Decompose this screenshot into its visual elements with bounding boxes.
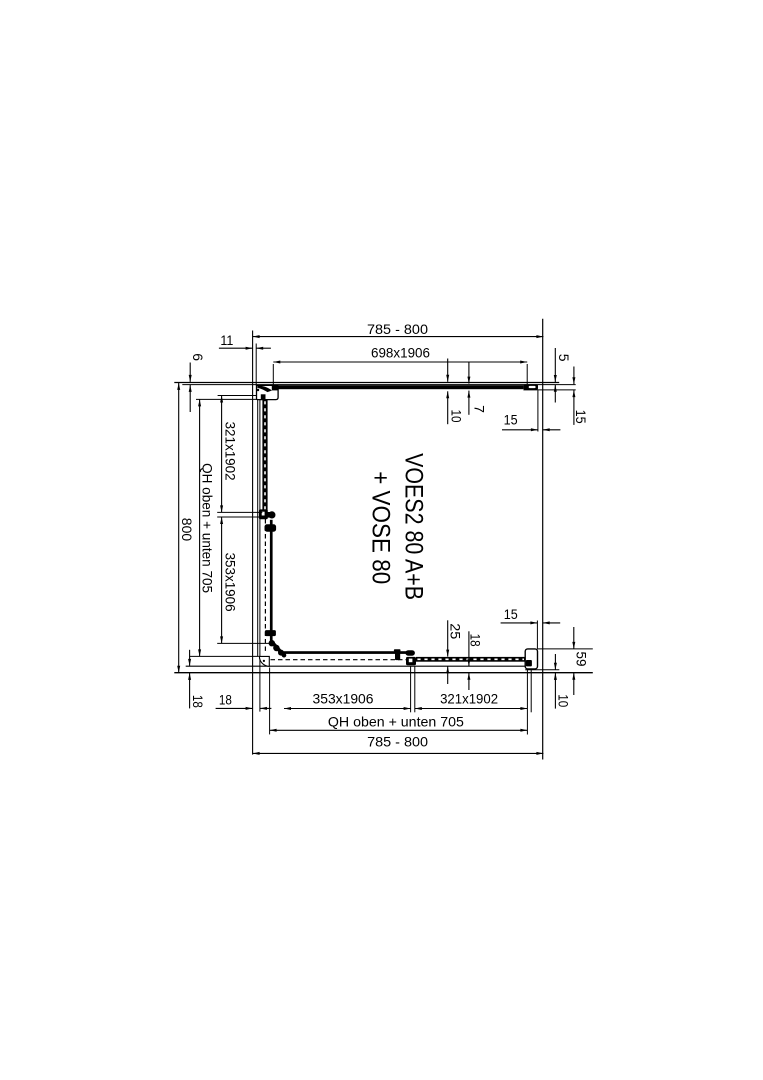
svg-text:7: 7: [472, 405, 488, 413]
svg-text:25: 25: [447, 623, 463, 639]
svg-text:5: 5: [556, 354, 572, 362]
svg-text:18: 18: [219, 691, 232, 707]
svg-text:800: 800: [179, 518, 195, 542]
svg-text:QH oben + unten 705: QH oben + unten 705: [328, 714, 464, 730]
svg-text:6: 6: [190, 353, 206, 361]
svg-text:18: 18: [467, 634, 483, 647]
svg-text:10: 10: [449, 410, 465, 423]
svg-text:QH oben + unten 705: QH oben + unten 705: [199, 463, 215, 593]
svg-text:353x1906: 353x1906: [313, 691, 374, 707]
svg-text:VOES2 80 A+B: VOES2 80 A+B: [400, 453, 428, 600]
svg-text:15: 15: [573, 410, 589, 424]
svg-text:698x1906: 698x1906: [371, 344, 430, 360]
svg-text:321x1902: 321x1902: [440, 691, 498, 707]
svg-text:321x1902: 321x1902: [222, 422, 238, 481]
svg-text:15: 15: [504, 411, 518, 427]
svg-text:11: 11: [220, 332, 233, 348]
svg-text:15: 15: [504, 606, 518, 622]
svg-text:785 - 800: 785 - 800: [367, 733, 428, 749]
svg-text:353x1906: 353x1906: [222, 553, 238, 612]
svg-text:+ VOSE 80: + VOSE 80: [367, 471, 395, 584]
svg-text:785 - 800: 785 - 800: [367, 321, 428, 337]
svg-text:10: 10: [555, 694, 571, 707]
svg-text:59: 59: [573, 652, 589, 667]
svg-text:18: 18: [190, 695, 206, 708]
